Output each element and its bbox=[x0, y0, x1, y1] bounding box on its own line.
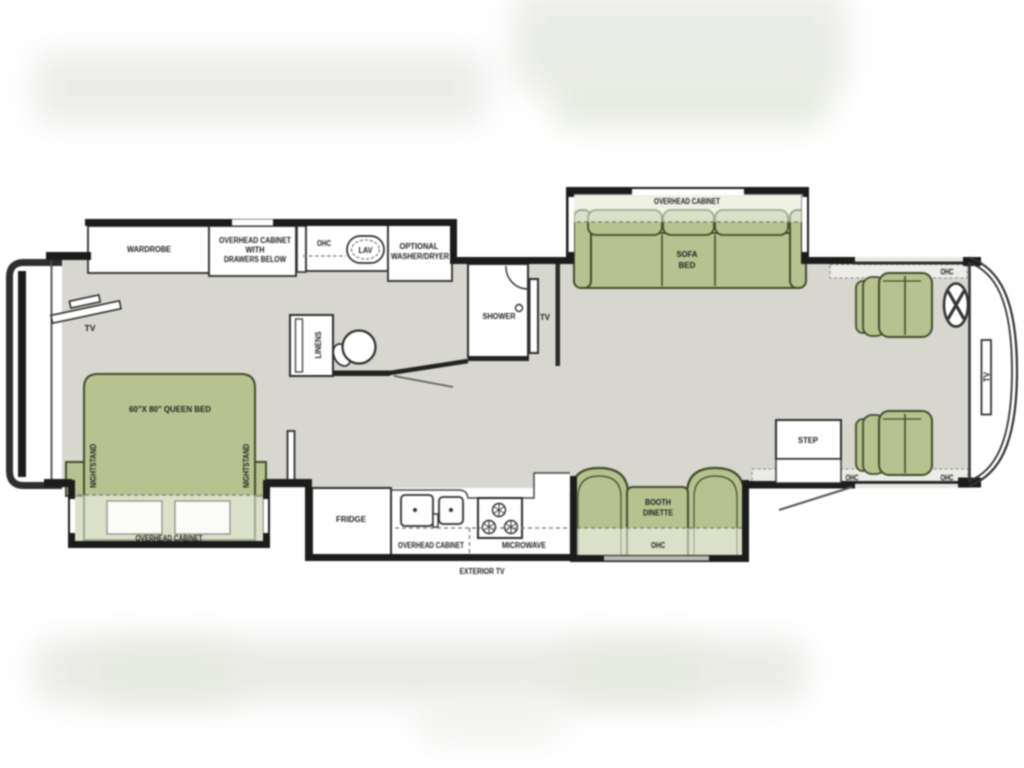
svg-text:60"X 80" QUEEN BED: 60"X 80" QUEEN BED bbox=[129, 404, 211, 414]
svg-text:LINENS: LINENS bbox=[313, 331, 323, 358]
svg-text:SOFA: SOFA bbox=[677, 249, 698, 259]
svg-text:MICROWAVE: MICROWAVE bbox=[502, 540, 546, 550]
svg-text:TV: TV bbox=[540, 312, 550, 322]
svg-text:OHC: OHC bbox=[317, 238, 331, 248]
svg-text:WITH: WITH bbox=[246, 245, 265, 255]
svg-text:OVERHEAD CABINET: OVERHEAD CABINET bbox=[136, 533, 204, 543]
svg-text:EXTERIOR TV: EXTERIOR TV bbox=[460, 566, 505, 576]
svg-text:DRAWERS BELOW: DRAWERS BELOW bbox=[224, 254, 287, 264]
svg-text:OVERHEAD CABINET: OVERHEAD CABINET bbox=[398, 540, 465, 550]
svg-text:LAV: LAV bbox=[359, 245, 373, 255]
svg-text:NIGHTSTAND: NIGHTSTAND bbox=[88, 444, 98, 488]
svg-text:TV: TV bbox=[85, 323, 96, 333]
svg-text:OVERHEAD CABINET: OVERHEAD CABINET bbox=[219, 235, 292, 245]
svg-text:OHC: OHC bbox=[651, 540, 665, 550]
svg-text:WARDROBE: WARDROBE bbox=[127, 244, 171, 254]
svg-text:OVERHEAD CABINET: OVERHEAD CABINET bbox=[654, 196, 721, 206]
svg-text:TV: TV bbox=[982, 372, 992, 382]
svg-text:BOOTH: BOOTH bbox=[645, 497, 671, 507]
svg-text:STEP: STEP bbox=[798, 435, 818, 445]
svg-text:OPTIONAL: OPTIONAL bbox=[400, 241, 439, 251]
svg-text:OHC: OHC bbox=[941, 267, 954, 277]
svg-text:OHC: OHC bbox=[846, 473, 859, 483]
svg-text:NIGHTSTAND: NIGHTSTAND bbox=[241, 444, 251, 488]
svg-text:WASHER/DRYER: WASHER/DRYER bbox=[391, 251, 450, 261]
svg-text:BED: BED bbox=[679, 260, 696, 270]
svg-text:FRIDGE: FRIDGE bbox=[336, 514, 366, 524]
svg-text:OHC: OHC bbox=[941, 473, 954, 483]
svg-text:SHOWER: SHOWER bbox=[483, 311, 517, 321]
svg-text:DINETTE: DINETTE bbox=[643, 508, 673, 518]
